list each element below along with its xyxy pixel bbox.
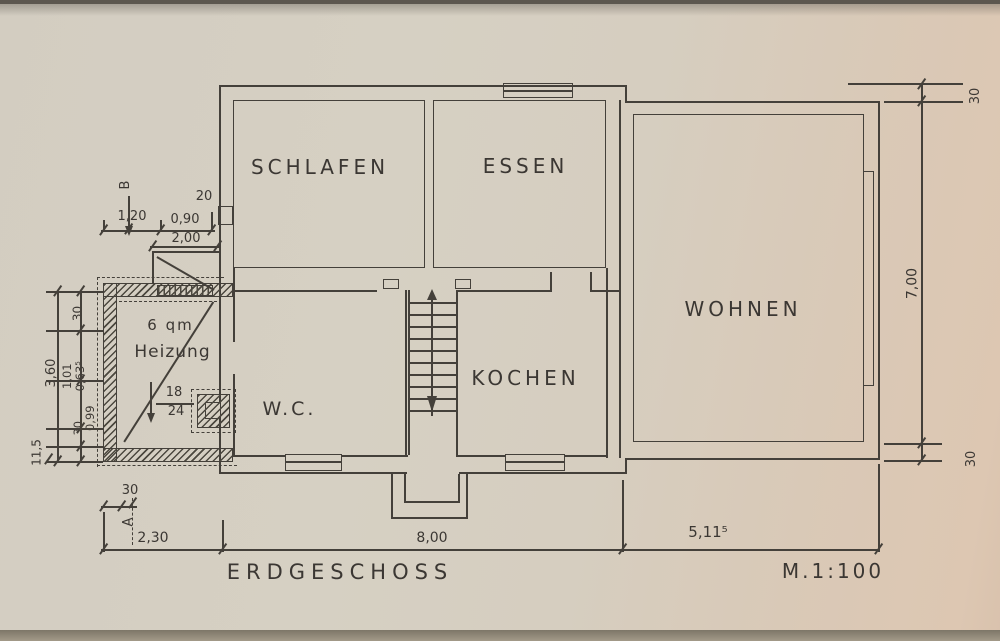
flue-size-numerator: 18 bbox=[158, 386, 190, 400]
dim-ext-left-5 bbox=[46, 446, 103, 448]
wall-wohnen-top-outer bbox=[625, 101, 880, 103]
photo-bottom-edge bbox=[0, 630, 1000, 641]
dim-ext-bottom-3 bbox=[878, 464, 880, 552]
dim-label-0-90: 0,90 bbox=[159, 213, 211, 227]
room-essen-outline bbox=[433, 100, 606, 268]
plan-title: ERDGESCHOSS bbox=[221, 561, 459, 584]
wall-kochen-top-right bbox=[590, 290, 620, 292]
wall-inner-bottom-1 bbox=[233, 455, 285, 457]
dim-label-0-99: 0,99 bbox=[84, 400, 96, 436]
entrance-bottom bbox=[391, 517, 468, 519]
wall-main-bottom-outer-right bbox=[459, 472, 627, 474]
flue-size-denominator: 24 bbox=[160, 405, 192, 419]
wall-jog-a bbox=[550, 272, 552, 292]
wall-wohnen-bottom-outer bbox=[625, 458, 880, 460]
wall-kochen-top-left bbox=[456, 290, 552, 292]
entrance-right bbox=[466, 474, 468, 519]
dim-label-2-00: 2,00 bbox=[160, 232, 212, 246]
section-b-arrow-down bbox=[125, 226, 133, 236]
window-kochen-bottom bbox=[505, 454, 565, 471]
door-leaf-stair bbox=[455, 279, 471, 289]
wall-main-bottom-outer-left bbox=[219, 472, 407, 474]
dim-label-1-20: 1,20 bbox=[106, 210, 158, 224]
room-label-wc: W.C. bbox=[252, 399, 327, 420]
stair-tread bbox=[410, 338, 456, 340]
wall-wc-left-upper bbox=[233, 268, 235, 342]
stair-tread bbox=[410, 386, 456, 388]
entrance-left bbox=[391, 474, 393, 519]
wall-essen-kochen-right bbox=[606, 268, 608, 458]
dim-ext-left-4 bbox=[46, 428, 103, 430]
stair-tread bbox=[410, 302, 456, 304]
photo-top-shadow bbox=[0, 4, 1000, 16]
room-schlafen-outline bbox=[233, 100, 425, 268]
stair-tread bbox=[410, 374, 456, 376]
annex-wall-left-hatch bbox=[103, 283, 117, 462]
dim-label-30-right-bottom: 30 bbox=[965, 446, 979, 472]
dim-line-left-total bbox=[57, 291, 59, 462]
dim-line-top-2 bbox=[150, 246, 220, 248]
stair-tread bbox=[410, 350, 456, 352]
door-leaf-wc bbox=[383, 279, 399, 289]
dim-label-1-01: 1,01 bbox=[61, 358, 73, 394]
room-label-heizung-area: 6 qm bbox=[143, 317, 198, 333]
chimney-dash-outline bbox=[191, 389, 236, 433]
section-marker-b: B bbox=[119, 175, 133, 195]
window-wohnen-right bbox=[863, 171, 874, 386]
dim-label-30-bottom-left: 30 bbox=[112, 484, 148, 498]
stair-tread bbox=[410, 362, 456, 364]
section-marker-a: A bbox=[122, 512, 136, 532]
dim-label-30-right-top: 30 bbox=[969, 83, 983, 109]
annex-dash-bottom bbox=[97, 465, 237, 466]
dim-ext-right-4 bbox=[884, 460, 942, 462]
wall-bottom-jog bbox=[625, 458, 627, 474]
wall-stair-right bbox=[456, 290, 458, 455]
window-essen-top bbox=[503, 83, 573, 98]
dim-ext-bottom-2 bbox=[622, 480, 624, 552]
dim-ext-right-3 bbox=[884, 443, 942, 445]
dim-label-30-left-top: 30 bbox=[72, 300, 85, 326]
wall-inner-bottom-2 bbox=[342, 455, 408, 457]
room-wohnen-outline bbox=[633, 114, 864, 442]
stair-tread bbox=[410, 314, 456, 316]
wall-inner-bottom-3 bbox=[456, 455, 505, 457]
stair-tread bbox=[410, 326, 456, 328]
wall-wc-right bbox=[405, 290, 407, 455]
dim-tick bbox=[44, 453, 53, 465]
entrance-step-right bbox=[458, 474, 460, 503]
wall-wohnen-right-outer bbox=[878, 101, 880, 460]
dim-ext-right-top bbox=[848, 83, 963, 85]
dim-label-20: 20 bbox=[188, 190, 220, 204]
dim-label-8-00: 8,00 bbox=[401, 531, 463, 546]
annex-window bbox=[157, 285, 213, 296]
porch-top bbox=[152, 251, 219, 253]
annex-dash-inner bbox=[119, 301, 217, 302]
window-wc-bottom bbox=[285, 454, 342, 471]
dim-line-right bbox=[921, 84, 923, 462]
dim-label-5-11-5: 5,11⁵ bbox=[672, 524, 744, 540]
dim-ext-left-3 bbox=[46, 380, 103, 382]
dim-label-7-00: 7,00 bbox=[905, 262, 920, 306]
wall-jog-b bbox=[590, 272, 592, 292]
stair-arrow-head-down bbox=[427, 396, 437, 412]
flue-fraction-line bbox=[156, 403, 194, 405]
section-a-line bbox=[132, 498, 133, 545]
entrance-step-h bbox=[404, 501, 460, 503]
floorplan-sheet: SCHLAFEN ESSEN WOHNEN KOCHEN W.C. 6 qm H… bbox=[0, 0, 1000, 641]
dim-label-11-5: 11,5 bbox=[31, 435, 44, 469]
annex-dash-top bbox=[97, 277, 224, 278]
scale-label: M.1:100 bbox=[763, 561, 903, 583]
wall-wohnen-left bbox=[619, 100, 621, 458]
annex-dash-left bbox=[97, 277, 98, 467]
wall-corridor-bottom-left bbox=[233, 290, 377, 292]
dim-line-bottom bbox=[101, 549, 880, 551]
entrance-step-left bbox=[404, 474, 406, 503]
dim-ext-right-2 bbox=[884, 101, 963, 103]
porch-left bbox=[152, 251, 154, 283]
window-schlafen-left bbox=[218, 206, 233, 225]
room-label-heizung: Heizung bbox=[124, 343, 221, 361]
flue-arrow-head-down bbox=[147, 413, 155, 423]
annex-wall-bottom-hatch bbox=[103, 448, 233, 462]
dim-ext-left-2 bbox=[46, 330, 103, 332]
stair-arrow-head-up bbox=[427, 289, 437, 300]
wall-inner-bottom-4 bbox=[565, 455, 606, 457]
room-label-kochen: KOCHEN bbox=[453, 368, 598, 390]
